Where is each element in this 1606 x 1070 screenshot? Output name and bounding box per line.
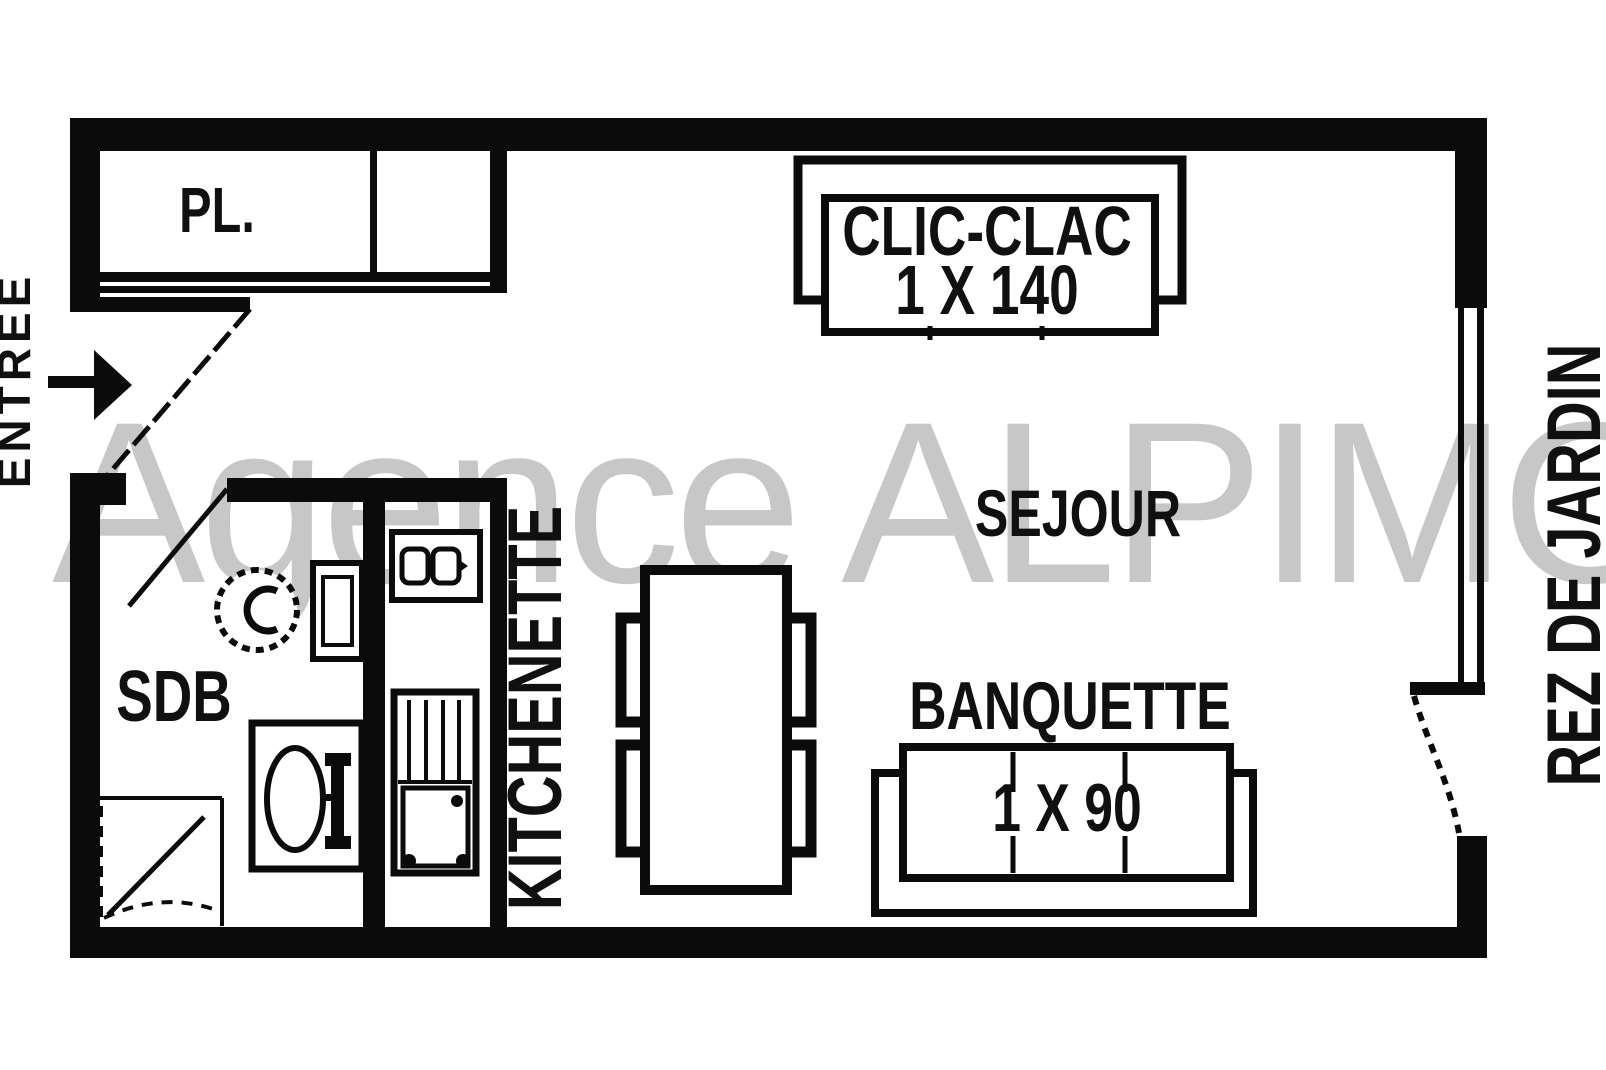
entrance-arrow-icon bbox=[48, 350, 132, 420]
garden-level-label: REZ DE JARDIN bbox=[1537, 344, 1606, 787]
shower-diagonal bbox=[108, 817, 204, 915]
wall-right-lower bbox=[1457, 836, 1487, 957]
chair-icon bbox=[621, 618, 640, 722]
fridge-icon bbox=[394, 692, 476, 873]
fridge-foot-left bbox=[402, 854, 416, 868]
bathroom-label: SDB bbox=[116, 661, 232, 733]
arrow-head bbox=[94, 350, 132, 420]
bathroom-kitchen-divider-wall bbox=[363, 478, 385, 928]
chair-icon bbox=[792, 745, 811, 852]
entrance-door-leaf bbox=[106, 309, 250, 477]
faucet-bottom bbox=[325, 836, 351, 849]
closet-divider bbox=[370, 150, 377, 274]
stove-icon bbox=[392, 532, 480, 600]
arrow-shaft bbox=[48, 376, 94, 388]
wall-left-upper bbox=[70, 118, 100, 308]
sink-icon bbox=[252, 723, 362, 869]
garden-door-frame bbox=[1410, 682, 1485, 695]
entrance-door-jamb bbox=[100, 473, 126, 505]
closet-front-line bbox=[100, 272, 507, 282]
closet-label: PL. bbox=[179, 178, 255, 242]
fridge-foot-right bbox=[456, 854, 470, 868]
garden-door-swing-arc bbox=[1414, 696, 1459, 833]
chair-icon bbox=[792, 618, 811, 722]
window-line-inner bbox=[1477, 308, 1484, 684]
wall-top bbox=[70, 118, 1487, 151]
bench-label: BANQUETTE bbox=[909, 672, 1231, 740]
entrance-label: ENTREE bbox=[0, 272, 37, 489]
wall-right-upper bbox=[1455, 118, 1487, 308]
floor-plan: Agence ALPIMO bbox=[0, 0, 1606, 1070]
shower-icon bbox=[95, 798, 222, 926]
chair-icon bbox=[621, 745, 640, 852]
bench-size-label: 1 X 90 bbox=[992, 774, 1141, 842]
closet-front-line-2 bbox=[100, 286, 507, 293]
wall-left-lower bbox=[70, 473, 100, 957]
toilet-icon bbox=[217, 563, 362, 659]
kitchen-label: KITCHENETTE bbox=[498, 506, 574, 910]
closet-right-wall bbox=[490, 148, 507, 293]
sofa-bed-size-label: 1 X 140 bbox=[895, 255, 1078, 325]
fridge-handle bbox=[451, 795, 463, 807]
living-room-label: SEJOUR bbox=[975, 480, 1181, 546]
floor-plan-drawing bbox=[0, 0, 1606, 1070]
faucet-tick bbox=[322, 794, 340, 801]
entry-wall-stub bbox=[70, 297, 250, 312]
dining-table bbox=[645, 570, 787, 890]
toilet-bowl bbox=[217, 570, 297, 650]
window-line-outer bbox=[1458, 308, 1464, 684]
bathroom-door-leaf bbox=[129, 489, 227, 606]
wall-bottom bbox=[70, 927, 1487, 958]
